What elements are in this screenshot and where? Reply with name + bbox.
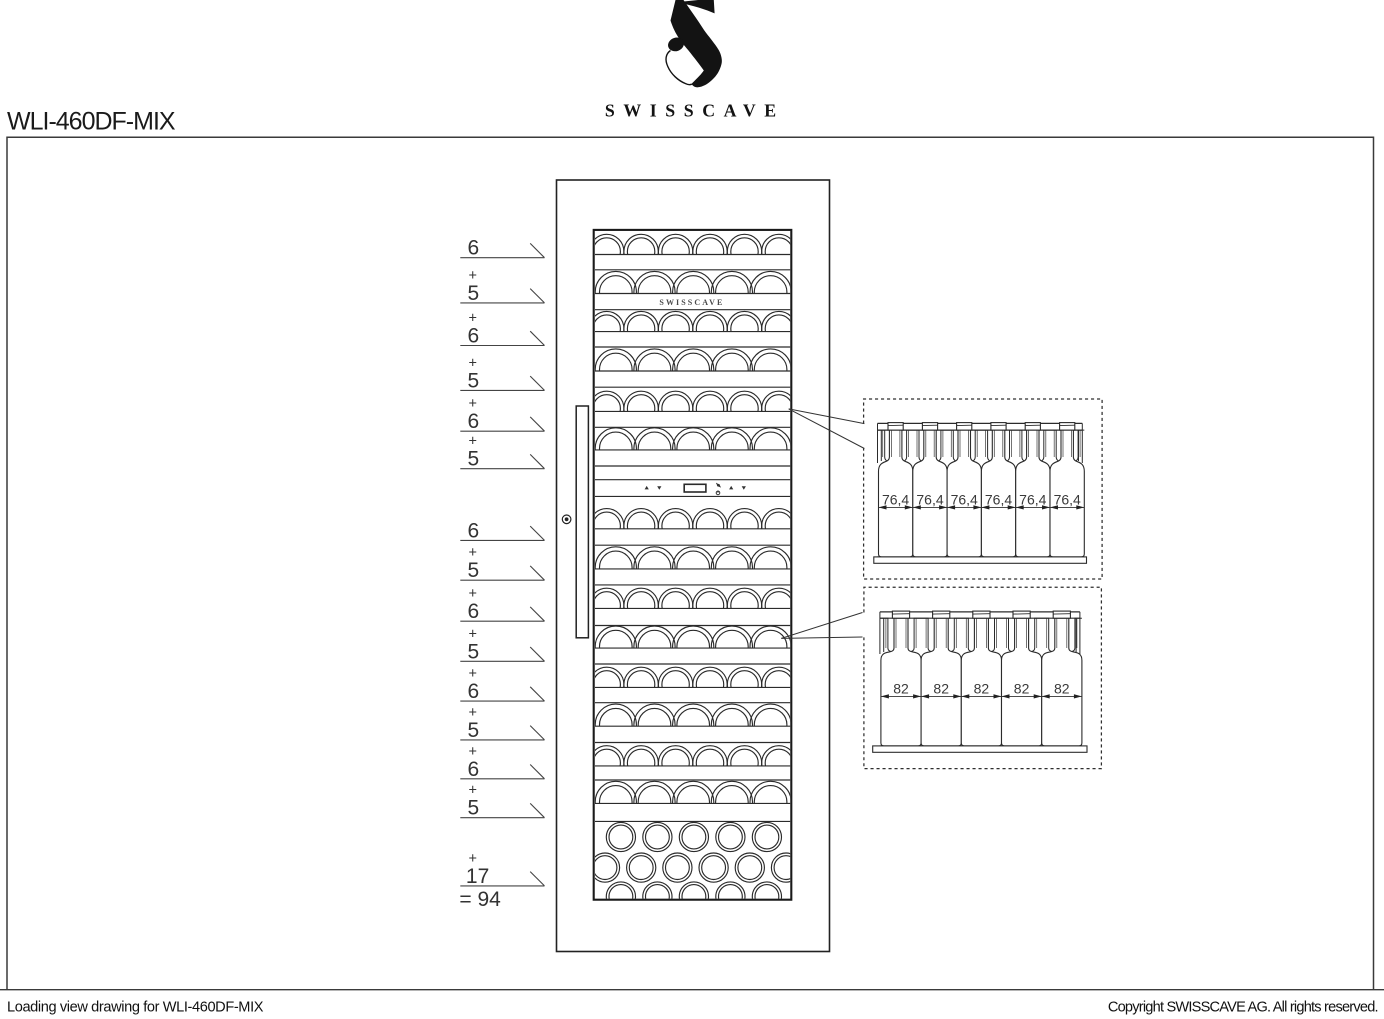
- svg-text:Loading view drawing for WLI-4: Loading view drawing for WLI-460DF-MIX: [7, 1000, 264, 1016]
- svg-text:Copyright SWISSCAVE AG. All ri: Copyright SWISSCAVE AG. All rights reser…: [1108, 1000, 1378, 1016]
- svg-text:5: 5: [468, 282, 480, 305]
- svg-text:6: 6: [468, 410, 480, 433]
- svg-text:17: 17: [466, 865, 489, 888]
- svg-text:6: 6: [468, 600, 480, 623]
- svg-text:6: 6: [468, 680, 480, 703]
- svg-text:5: 5: [468, 559, 480, 582]
- svg-text:82: 82: [1014, 681, 1030, 697]
- svg-text:82: 82: [974, 681, 990, 697]
- svg-text:SWISSCAVE: SWISSCAVE: [659, 298, 724, 307]
- svg-text:76,4: 76,4: [1054, 492, 1081, 508]
- svg-text:6: 6: [468, 758, 480, 781]
- svg-text:6: 6: [468, 325, 480, 348]
- svg-text:76,4: 76,4: [882, 492, 909, 508]
- svg-text:76,4: 76,4: [951, 492, 978, 508]
- svg-text:6: 6: [468, 519, 480, 542]
- svg-text:= 94: = 94: [459, 888, 501, 911]
- svg-text:5: 5: [468, 719, 480, 742]
- svg-text:76,4: 76,4: [1019, 492, 1046, 508]
- svg-text:WLI-460DF-MIX: WLI-460DF-MIX: [7, 108, 176, 136]
- svg-text:5: 5: [468, 369, 480, 392]
- svg-text:5: 5: [468, 448, 480, 471]
- svg-text:82: 82: [893, 681, 909, 697]
- svg-text:SWISSCAVE: SWISSCAVE: [605, 101, 785, 121]
- svg-text:76,4: 76,4: [985, 492, 1012, 508]
- svg-text:5: 5: [468, 640, 480, 663]
- svg-text:82: 82: [933, 681, 949, 697]
- svg-text:82: 82: [1054, 681, 1070, 697]
- svg-text:5: 5: [468, 797, 480, 820]
- svg-text:76,4: 76,4: [916, 492, 943, 508]
- svg-text:6: 6: [468, 237, 480, 260]
